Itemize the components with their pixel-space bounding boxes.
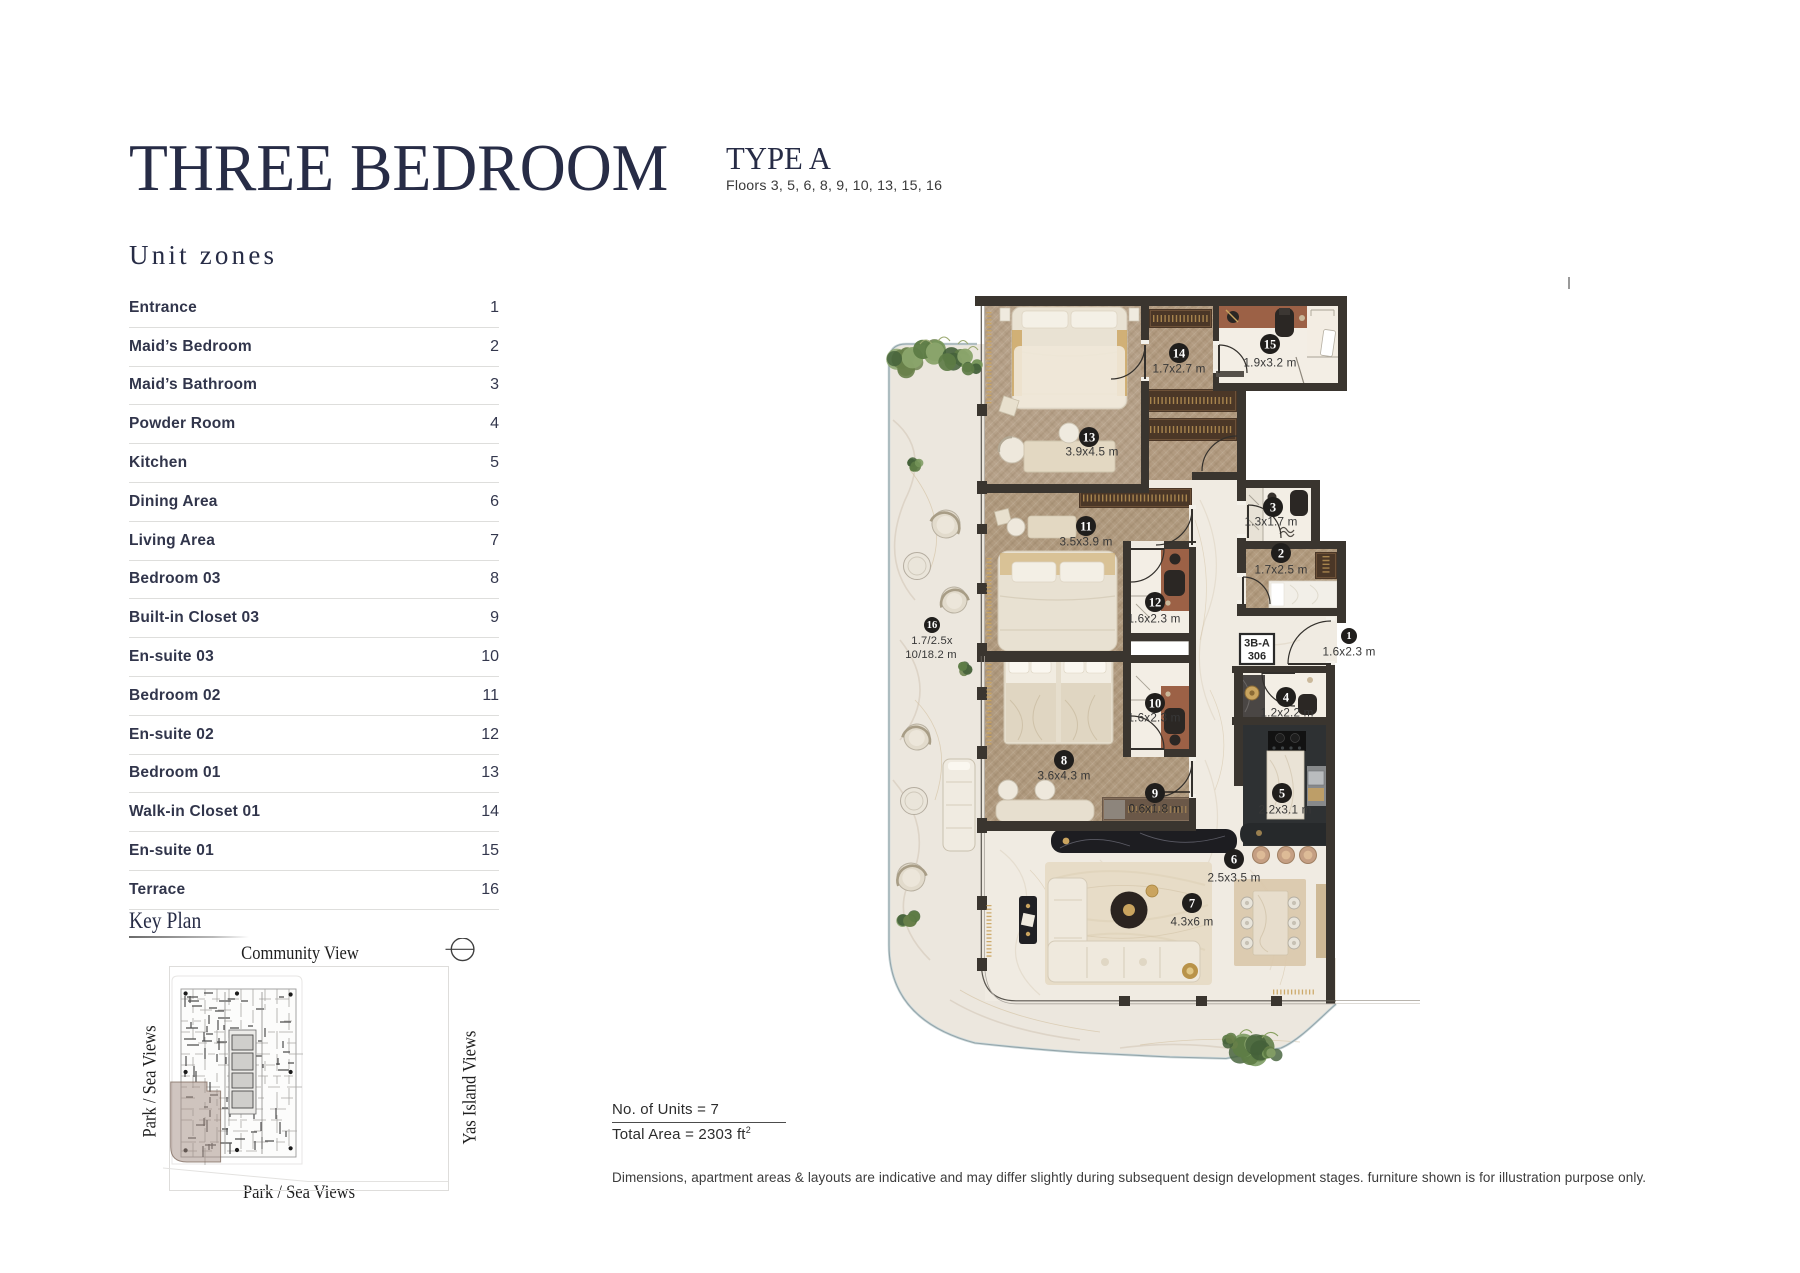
svg-text:2.2x3.1 m: 2.2x3.1 m — [1258, 804, 1311, 817]
svg-text:1.2x2.2 m: 1.2x2.2 m — [1260, 707, 1313, 720]
svg-text:1.7x2.5 m: 1.7x2.5 m — [1254, 564, 1307, 577]
svg-text:1.3x1.7 m: 1.3x1.7 m — [1244, 516, 1297, 529]
svg-text:13: 13 — [1083, 431, 1096, 445]
svg-text:9: 9 — [1152, 787, 1158, 801]
svg-text:16: 16 — [927, 620, 938, 631]
svg-text:3.5x3.9 m: 3.5x3.9 m — [1059, 536, 1112, 549]
svg-text:1: 1 — [1346, 631, 1351, 642]
svg-text:2.5x3.5 m: 2.5x3.5 m — [1207, 872, 1260, 885]
svg-text:306: 306 — [1248, 651, 1266, 663]
svg-text:3.6x4.3 m: 3.6x4.3 m — [1037, 770, 1090, 783]
svg-text:1.7x2.7 m: 1.7x2.7 m — [1152, 363, 1205, 376]
svg-text:1.6x2.3 m: 1.6x2.3 m — [1127, 712, 1180, 725]
svg-text:10: 10 — [1149, 697, 1162, 711]
svg-text:3B-A: 3B-A — [1244, 638, 1270, 650]
svg-text:6: 6 — [1231, 853, 1237, 867]
svg-text:4.3x6 m: 4.3x6 m — [1171, 916, 1214, 929]
svg-text:11: 11 — [1080, 520, 1092, 534]
svg-text:4: 4 — [1283, 691, 1290, 705]
svg-text:12: 12 — [1149, 596, 1162, 610]
svg-text:1.9x3.2 m: 1.9x3.2 m — [1243, 357, 1296, 370]
svg-text:14: 14 — [1173, 347, 1186, 361]
svg-text:3.9x4.5 m: 3.9x4.5 m — [1065, 446, 1118, 459]
svg-text:1.6x2.3 m: 1.6x2.3 m — [1127, 613, 1180, 626]
svg-text:8: 8 — [1061, 754, 1067, 768]
svg-text:7: 7 — [1189, 897, 1195, 911]
svg-text:10/18.2 m: 10/18.2 m — [905, 649, 957, 661]
svg-text:5: 5 — [1279, 787, 1285, 801]
svg-text:3: 3 — [1270, 501, 1276, 515]
svg-text:1.6x2.3 m: 1.6x2.3 m — [1322, 646, 1375, 659]
svg-text:15: 15 — [1264, 338, 1277, 352]
svg-text:0.6x1.8 m: 0.6x1.8 m — [1128, 803, 1181, 816]
svg-text:2: 2 — [1278, 547, 1284, 561]
svg-text:1.7/2.5x: 1.7/2.5x — [911, 635, 953, 647]
